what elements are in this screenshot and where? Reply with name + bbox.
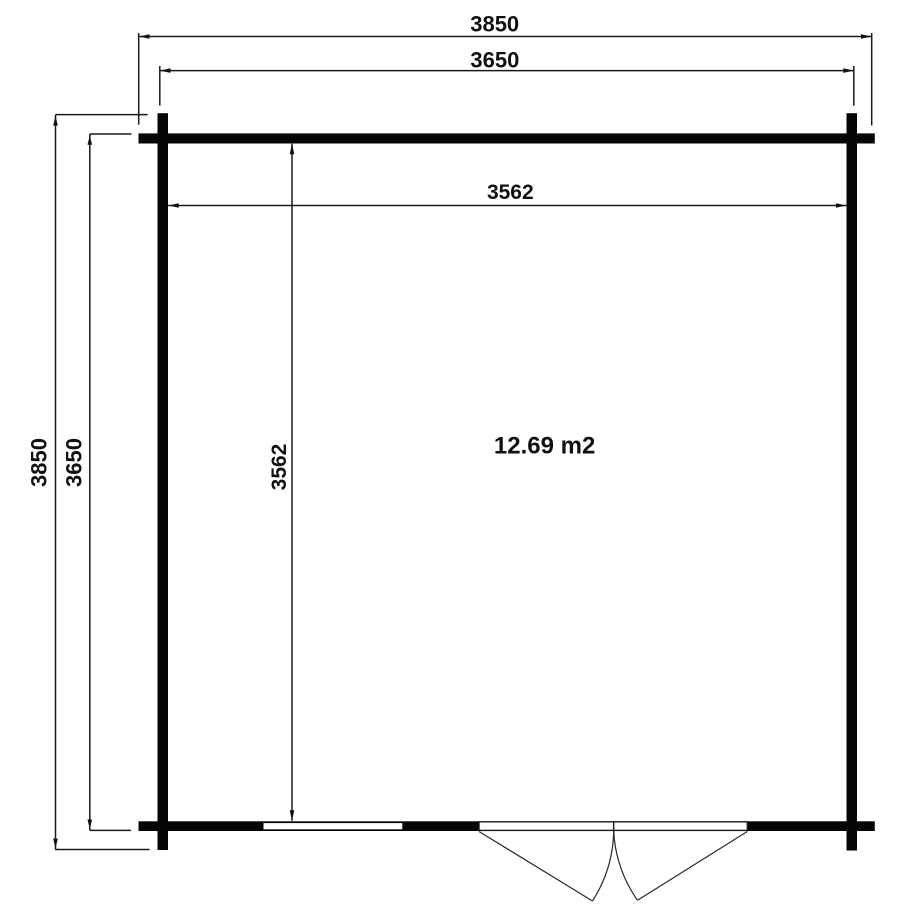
svg-text:3562: 3562 — [487, 181, 534, 204]
svg-text:3650: 3650 — [61, 438, 86, 487]
svg-text:3850: 3850 — [26, 438, 51, 487]
svg-text:12.69 m2: 12.69 m2 — [494, 433, 595, 460]
svg-text:3650: 3650 — [470, 48, 519, 73]
svg-text:3562: 3562 — [268, 444, 291, 491]
svg-text:3850: 3850 — [470, 11, 519, 36]
